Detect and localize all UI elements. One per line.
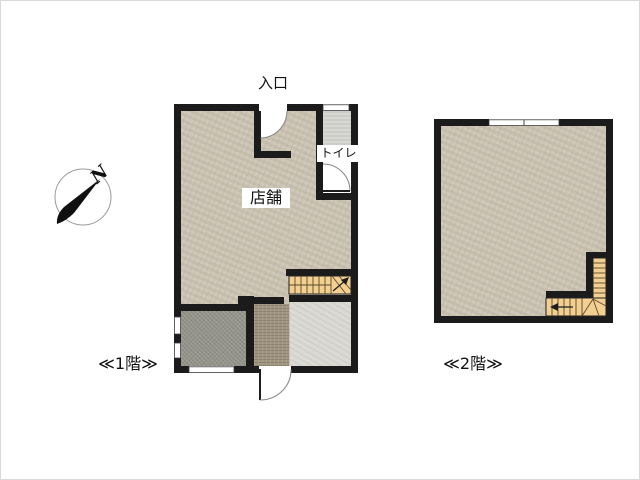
shop-room-label: 店舗 bbox=[242, 188, 290, 208]
toilet-door-swing-icon bbox=[323, 164, 350, 191]
floor1-caption: ≪1階≫ bbox=[91, 355, 165, 373]
floor2-caption: ≪2階≫ bbox=[436, 355, 510, 373]
window-icon bbox=[175, 343, 181, 358]
floor2-windows bbox=[489, 120, 559, 126]
floor2-staircase bbox=[546, 258, 606, 316]
rear-door-swing-icon bbox=[260, 369, 291, 400]
toilet-room-label: トイレ bbox=[317, 145, 360, 162]
floor1-staircase bbox=[289, 276, 351, 294]
floor-plan-linework: N bbox=[1, 1, 640, 480]
floor2-walls bbox=[434, 119, 613, 323]
window-icon bbox=[323, 105, 349, 111]
window-icon bbox=[189, 367, 234, 373]
floor-plan-canvas: N 入口 店舗 トイレ ≪1階≫ ≪2階≫ bbox=[0, 0, 640, 480]
entrance-door-swing-icon bbox=[260, 111, 287, 138]
compass-north-icon: N bbox=[55, 160, 114, 225]
entrance-label: 入口 bbox=[249, 75, 297, 92]
window-icon bbox=[175, 317, 181, 334]
